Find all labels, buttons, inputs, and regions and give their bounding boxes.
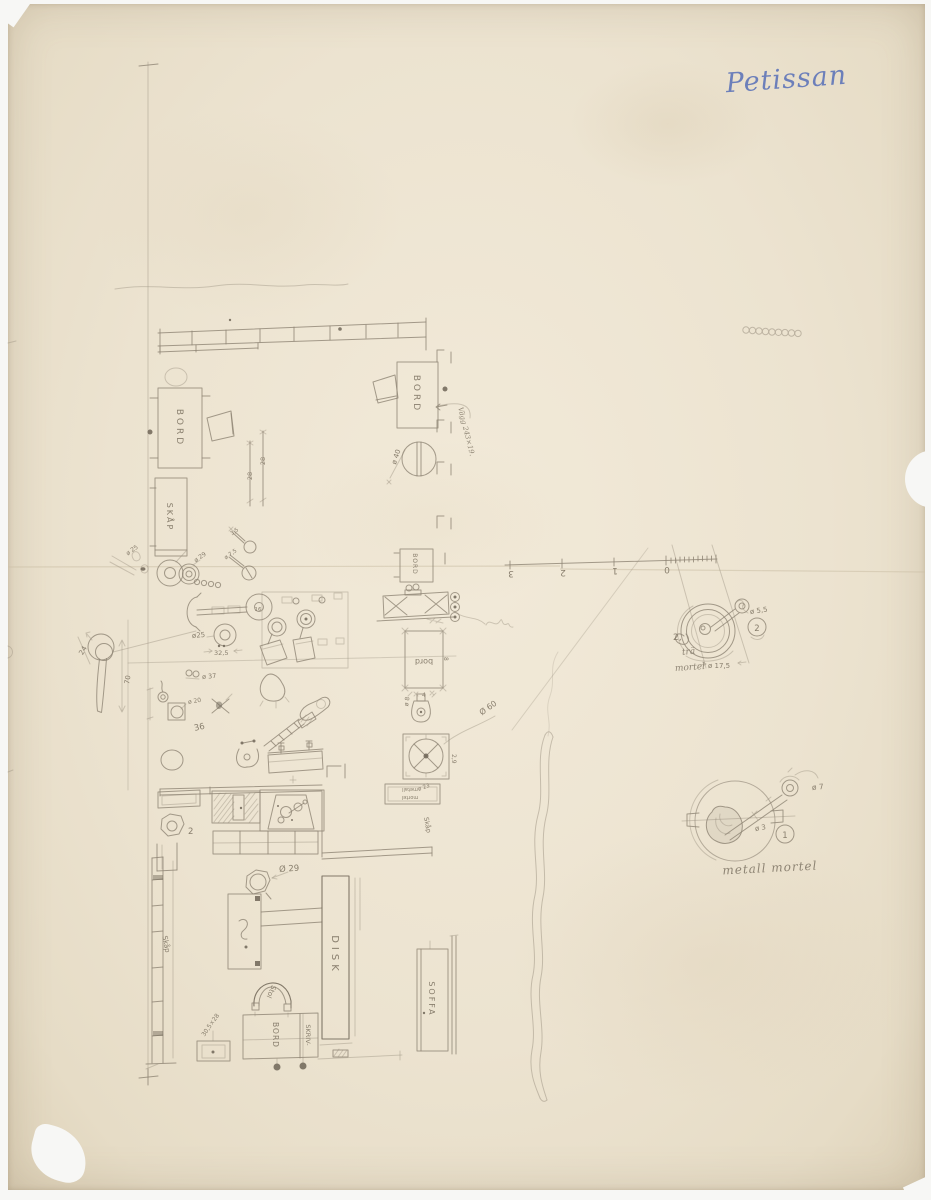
scanned-sketch-page: Petissan [0, 0, 931, 1200]
tracing-paper-sheet [8, 4, 925, 1190]
